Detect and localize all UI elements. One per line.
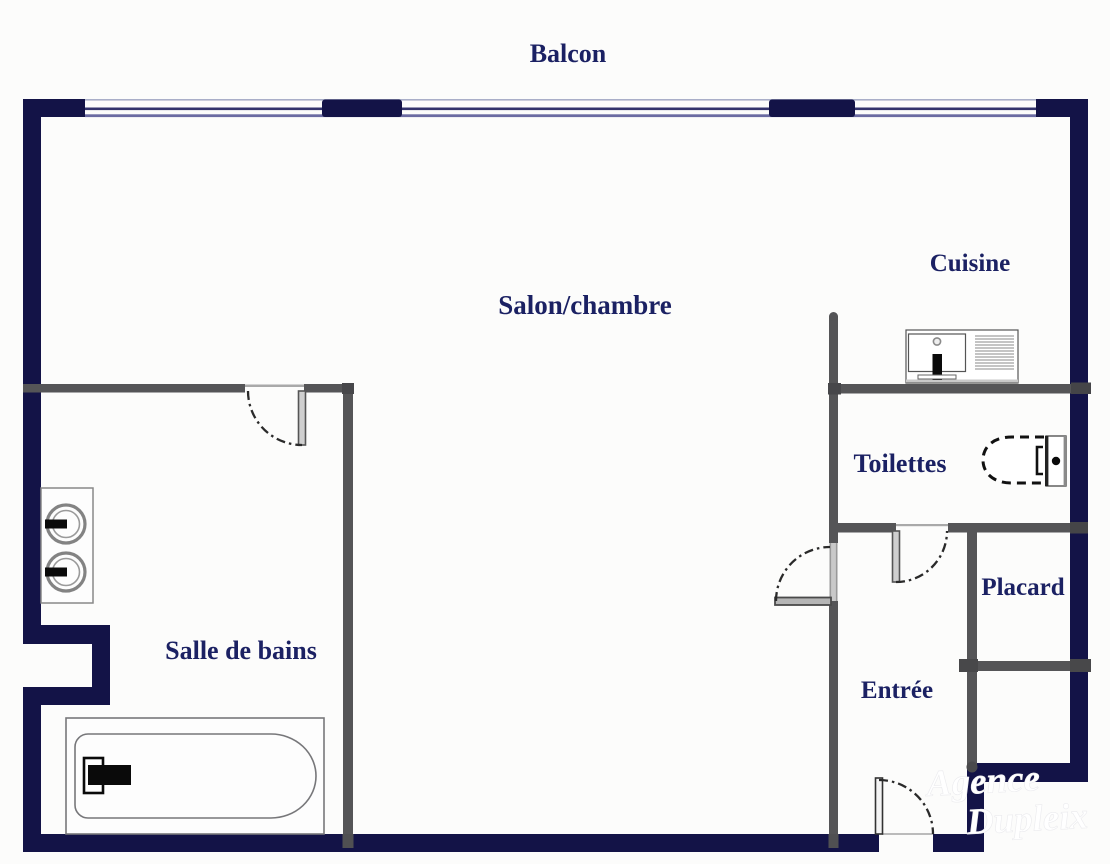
svg-text:Salon/chambre: Salon/chambre	[498, 290, 672, 320]
svg-text:Balcon: Balcon	[530, 39, 607, 68]
svg-text:Agence: Agence	[924, 758, 1041, 805]
svg-text:Placard: Placard	[981, 574, 1064, 601]
svg-text:Entrée: Entrée	[861, 677, 933, 704]
svg-text:Toilettes: Toilettes	[854, 449, 947, 478]
svg-text:Cuisine: Cuisine	[930, 250, 1011, 277]
svg-text:Dupleix: Dupleix	[965, 796, 1089, 843]
svg-text:Salle de bains: Salle de bains	[165, 636, 317, 665]
